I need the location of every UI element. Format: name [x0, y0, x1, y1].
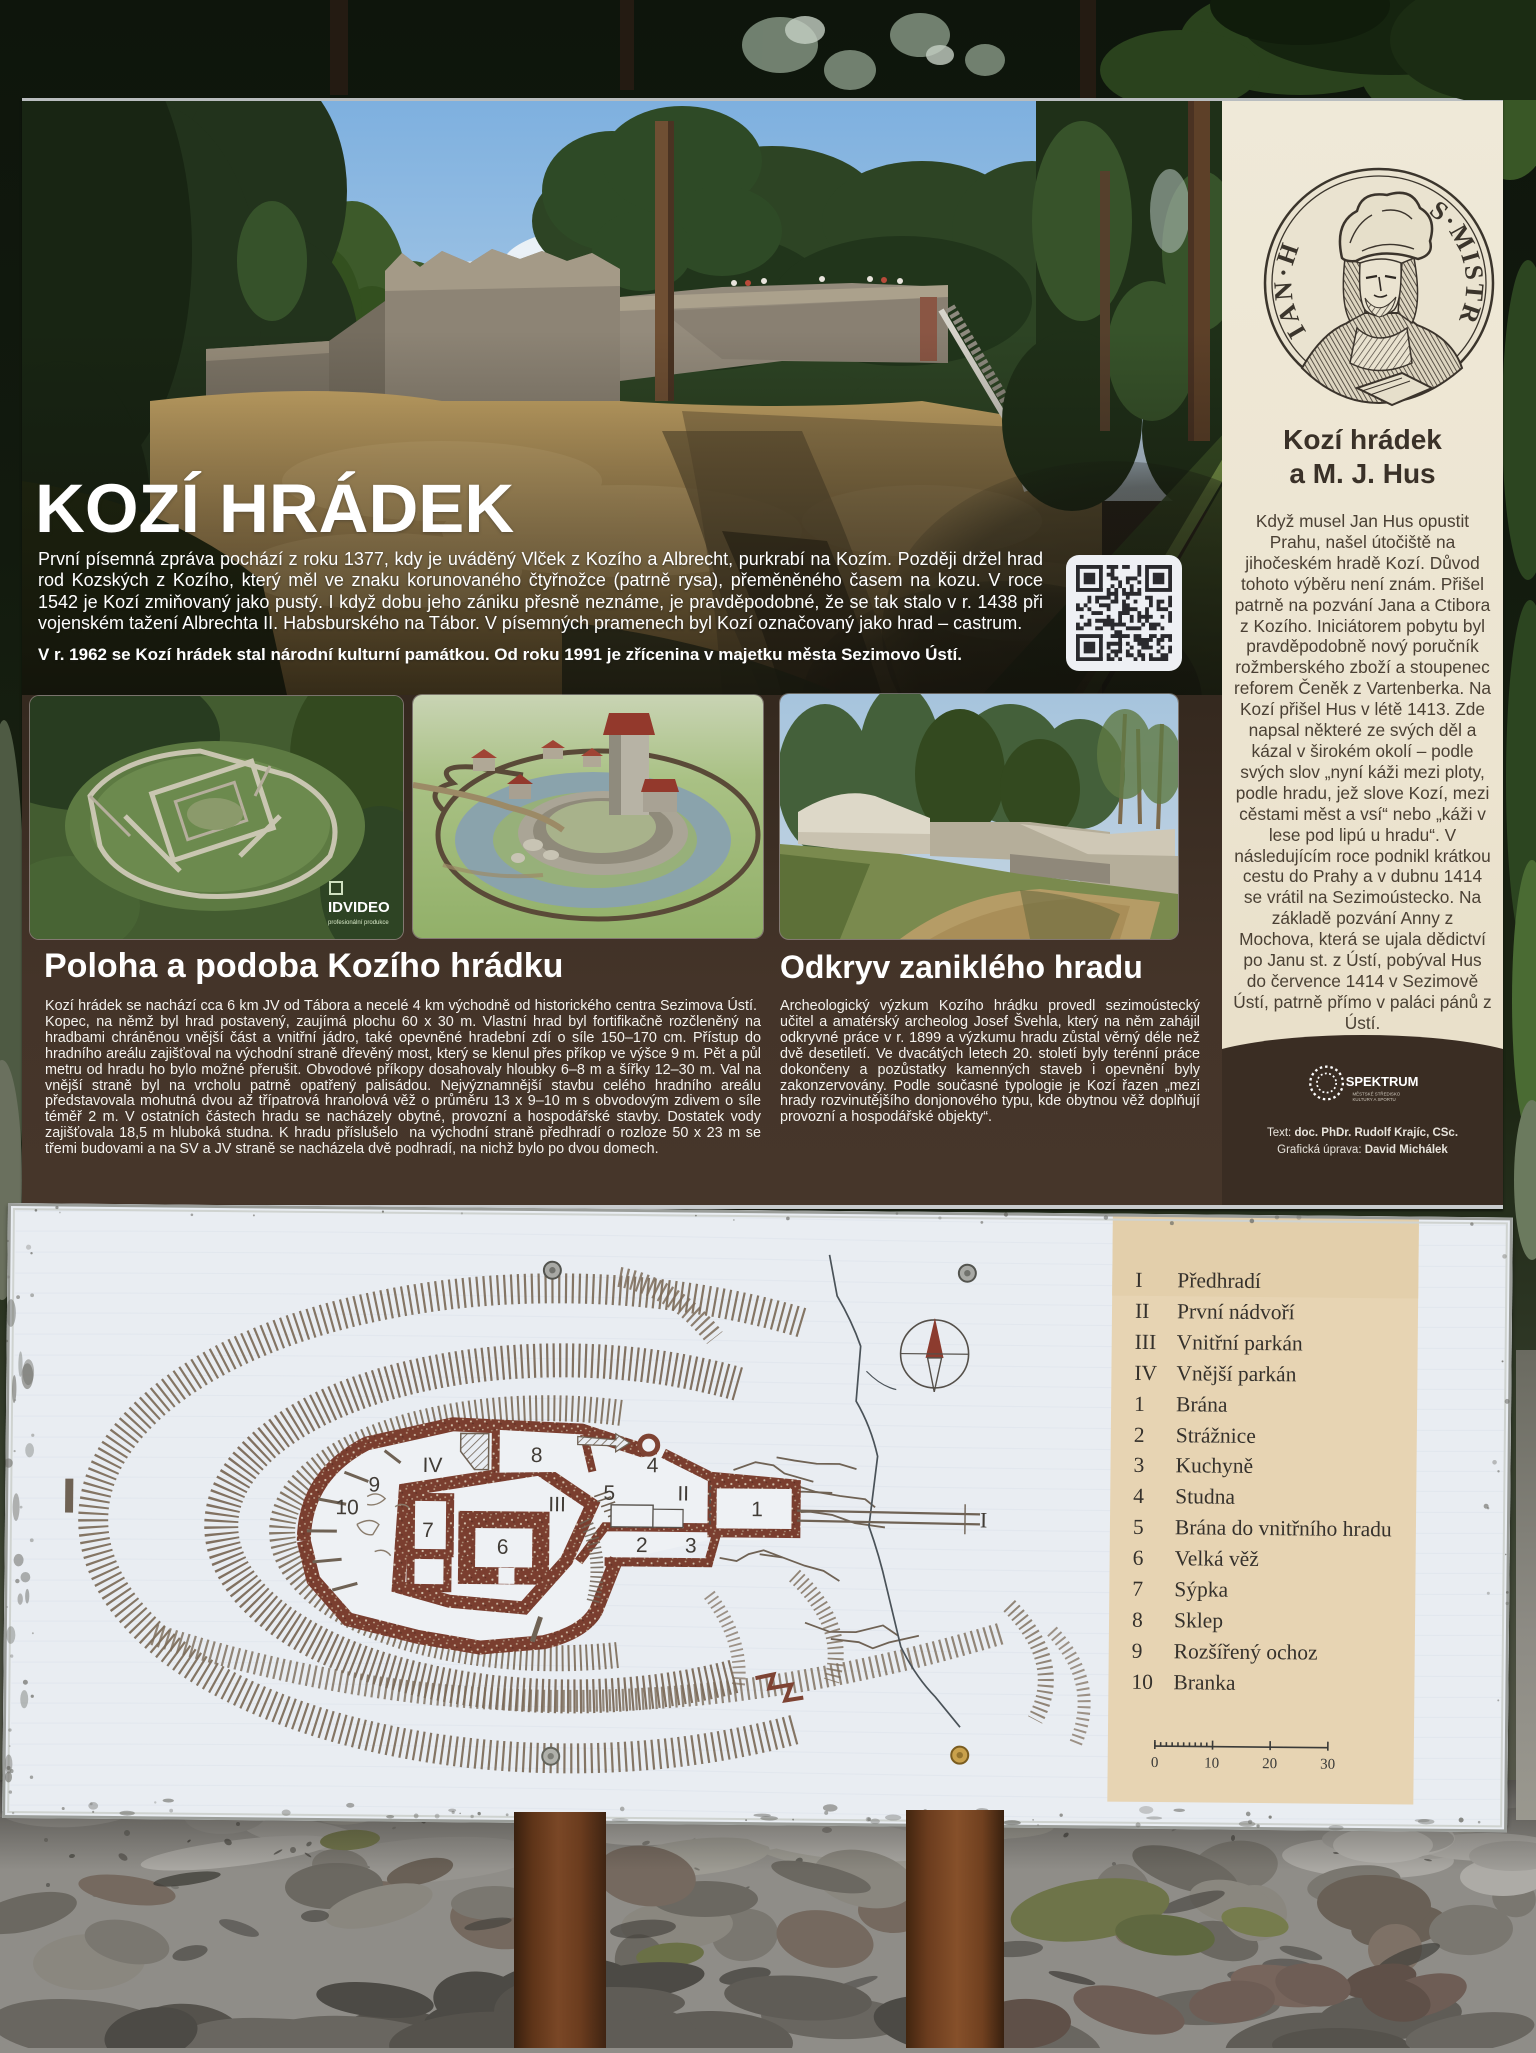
- svg-text:5: 5: [603, 1482, 615, 1505]
- svg-text:SPEKTRUM: SPEKTRUM: [1346, 1074, 1419, 1089]
- svg-text:2: 2: [636, 1534, 648, 1557]
- svg-text:4: 4: [647, 1454, 659, 1477]
- svg-text:20: 20: [1262, 1756, 1277, 1772]
- svg-text:3: 3: [685, 1535, 697, 1558]
- svg-text:10: 10: [1204, 1756, 1219, 1772]
- svg-text:IV: IV: [422, 1454, 442, 1477]
- svg-text:8: 8: [531, 1444, 543, 1467]
- svg-text:MĚSTSKÉ STŘEDISKO: MĚSTSKÉ STŘEDISKO: [1352, 1089, 1400, 1096]
- svg-text:1: 1: [751, 1498, 763, 1521]
- svg-text:profesionální produkce: profesionální produkce: [328, 920, 389, 926]
- svg-text:III: III: [548, 1493, 566, 1516]
- svg-text:I: I: [980, 1507, 988, 1532]
- svg-text:10: 10: [335, 1496, 359, 1519]
- svg-text:KULTURY A SPORTU: KULTURY A SPORTU: [1352, 1097, 1395, 1102]
- svg-text:9: 9: [368, 1473, 380, 1496]
- svg-text:30: 30: [1320, 1757, 1335, 1773]
- svg-text:7: 7: [422, 1519, 434, 1542]
- svg-text:0: 0: [1151, 1755, 1159, 1771]
- svg-text:6: 6: [497, 1536, 509, 1559]
- svg-text:II: II: [677, 1482, 689, 1505]
- svg-text:IDVIDEO: IDVIDEO: [328, 899, 390, 916]
